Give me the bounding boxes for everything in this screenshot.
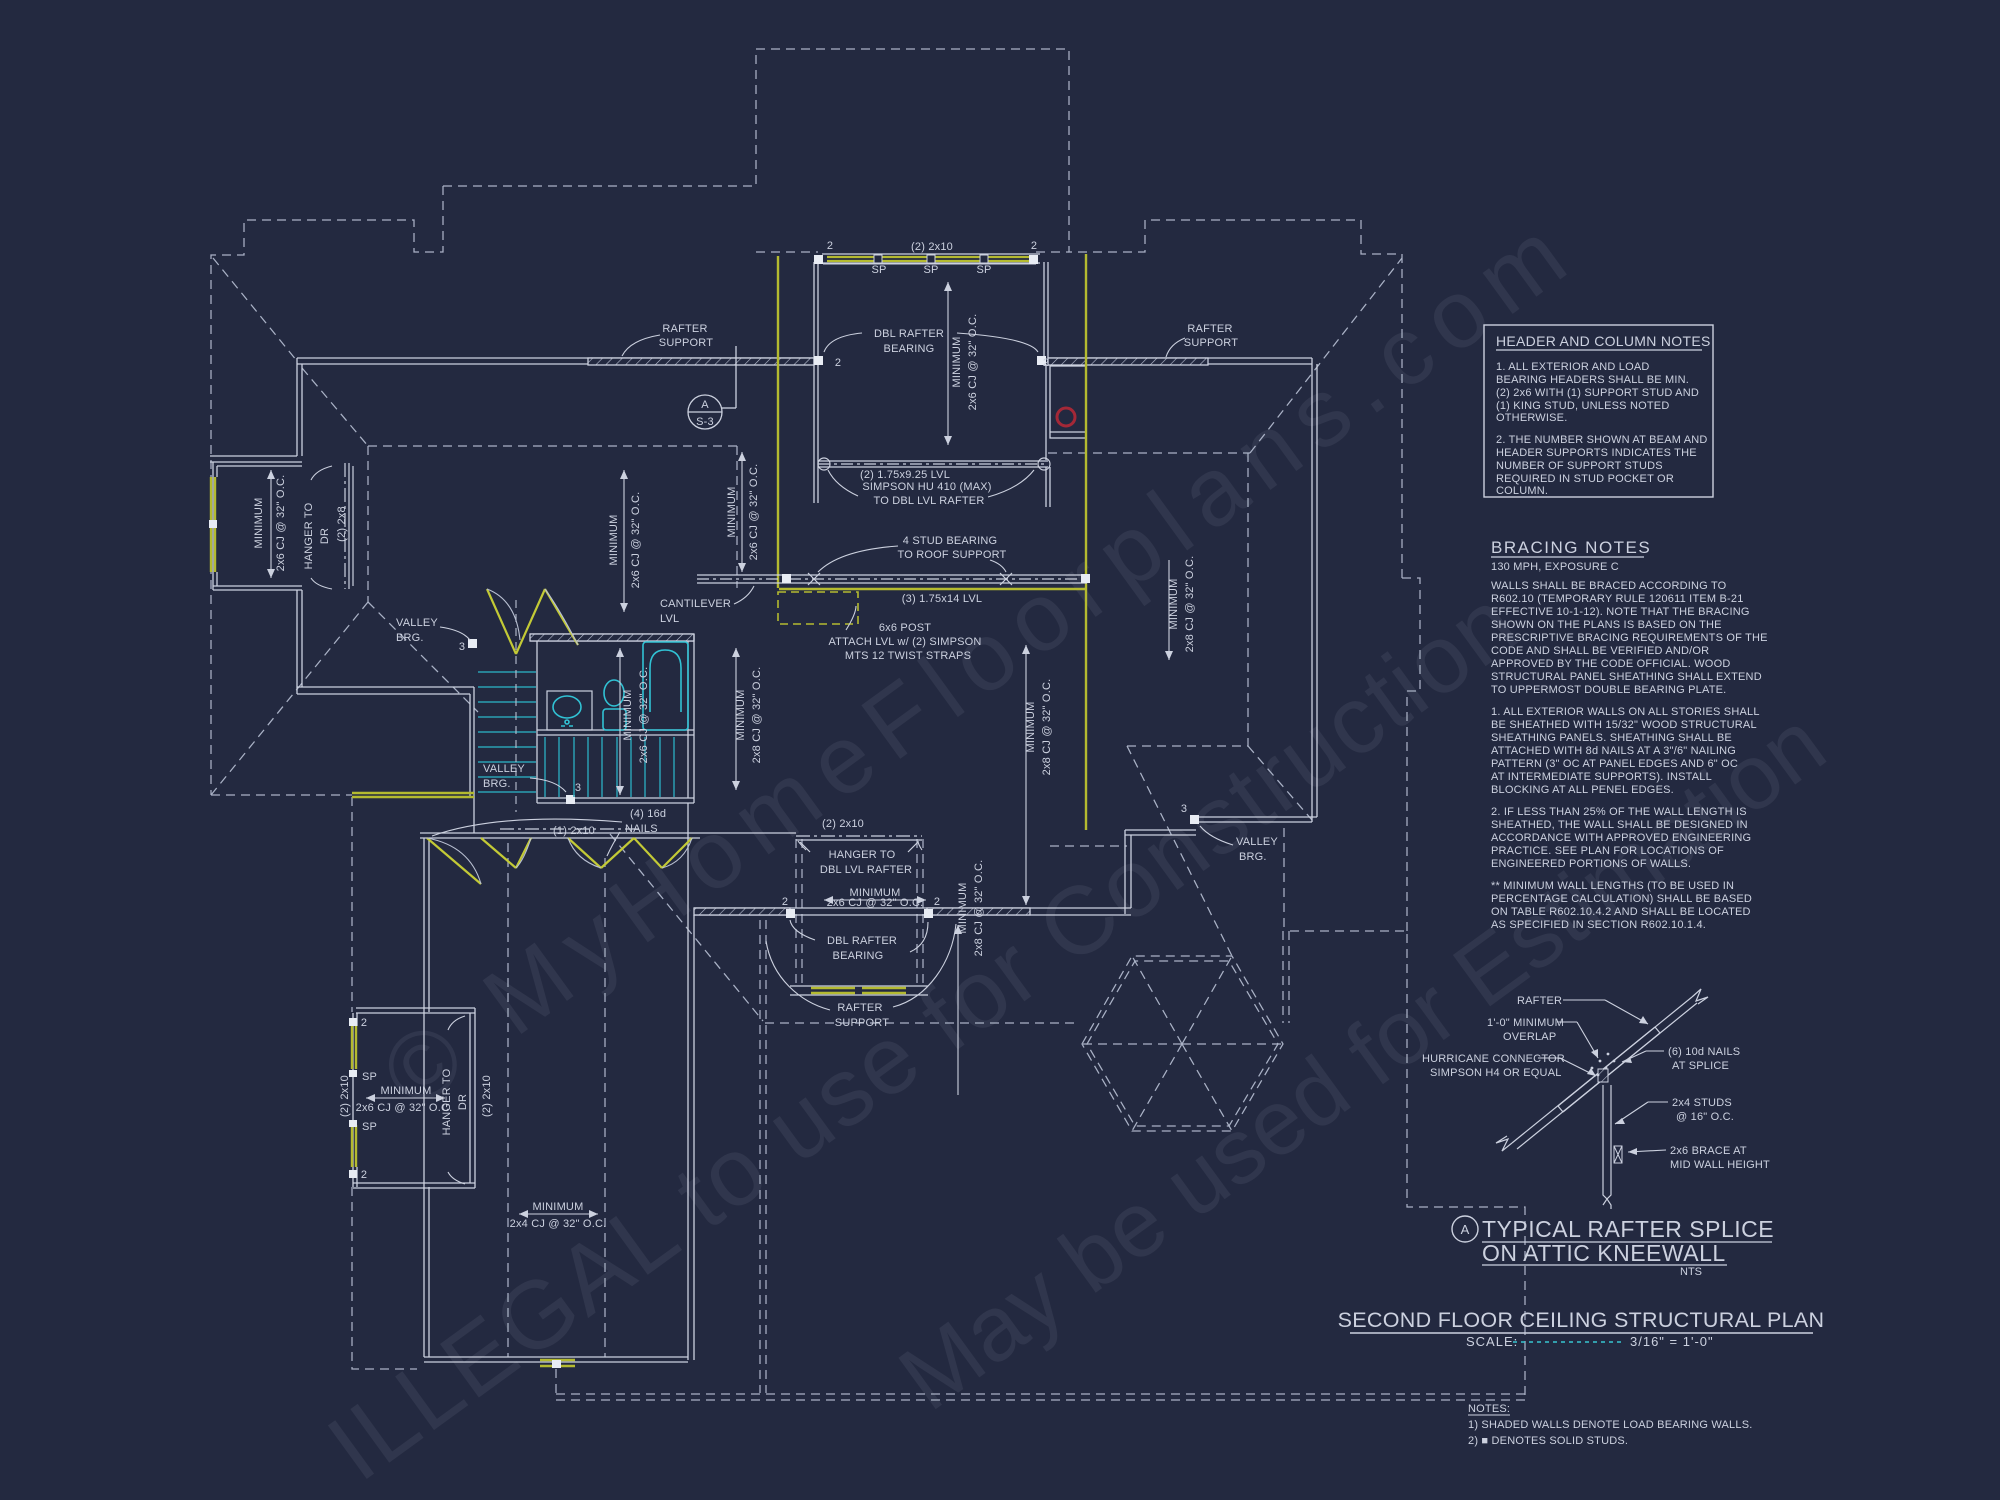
svg-text:1'-0" MINIMUM: 1'-0" MINIMUM xyxy=(1487,1017,1564,1029)
svg-text:2x4 CJ @ 32" O.C.: 2x4 CJ @ 32" O.C. xyxy=(510,1218,607,1230)
svg-text:SHOWN ON THE PLANS IS BASED ON: SHOWN ON THE PLANS IS BASED ON THE xyxy=(1491,619,1722,631)
svg-text:SP: SP xyxy=(976,264,991,276)
svg-text:MINIMUM: MINIMUM xyxy=(608,515,620,566)
svg-text:2: 2 xyxy=(782,896,788,908)
svg-text:2x6 CJ @ 32" O.C.: 2x6 CJ @ 32" O.C. xyxy=(356,1102,453,1114)
svg-text:6x6 POST: 6x6 POST xyxy=(879,622,931,634)
svg-text:MID WALL HEIGHT: MID WALL HEIGHT xyxy=(1670,1159,1770,1171)
svg-text:SIMPSON HU 410 (MAX): SIMPSON HU 410 (MAX) xyxy=(862,481,991,493)
svg-text:ATTACH LVL w/ (2) SIMPSON: ATTACH LVL w/ (2) SIMPSON xyxy=(828,636,981,648)
svg-text:NTS: NTS xyxy=(1680,1266,1702,1278)
svg-text:2) ■ DENOTES SOLID STUDS.: 2) ■ DENOTES SOLID STUDS. xyxy=(1468,1435,1628,1447)
svg-text:AT INTERMEDIATE SUPPORTS). INS: AT INTERMEDIATE SUPPORTS). INSTALL xyxy=(1491,771,1712,783)
svg-text:VALLEY: VALLEY xyxy=(483,763,525,775)
svg-text:TO ROOF SUPPORT: TO ROOF SUPPORT xyxy=(898,549,1007,561)
svg-text:SECOND FLOOR CEILING STRUCTURA: SECOND FLOOR CEILING STRUCTURAL PLAN xyxy=(1338,1308,1825,1332)
svg-text:HANGER TO: HANGER TO xyxy=(829,849,896,861)
svg-text:(2) 2x8: (2) 2x8 xyxy=(336,506,348,542)
svg-text:TYPICAL RAFTER SPLICE: TYPICAL RAFTER SPLICE xyxy=(1482,1216,1774,1242)
svg-text:AS SPECIFIED IN SECTION R602.1: AS SPECIFIED IN SECTION R602.10.1.4. xyxy=(1491,919,1706,931)
svg-text:(2) 2x10: (2) 2x10 xyxy=(822,818,864,830)
svg-text:2x6 CJ @ 32" O.C.: 2x6 CJ @ 32" O.C. xyxy=(748,464,760,561)
svg-text:SUPPORT: SUPPORT xyxy=(835,1017,889,1029)
svg-text:2x6 CJ @ 32" O.C.: 2x6 CJ @ 32" O.C. xyxy=(967,314,979,411)
svg-text:3: 3 xyxy=(459,641,465,653)
svg-text:(2) 2x6 WITH (1) SUPPORT STUD: (2) 2x6 WITH (1) SUPPORT STUD AND xyxy=(1496,387,1699,399)
svg-text:BRG.: BRG. xyxy=(396,632,424,644)
svg-text:SUPPORT: SUPPORT xyxy=(1184,337,1238,349)
svg-text:CANTILEVER: CANTILEVER xyxy=(660,598,731,610)
svg-text:130 MPH, EXPOSURE C: 130 MPH, EXPOSURE C xyxy=(1491,561,1619,573)
svg-text:3: 3 xyxy=(575,782,581,794)
svg-text:2. IF LESS THAN 25% OF THE WAL: 2. IF LESS THAN 25% OF THE WALL LENGTH I… xyxy=(1491,806,1747,818)
svg-text:1. ALL EXTERIOR AND LOAD: 1. ALL EXTERIOR AND LOAD xyxy=(1496,361,1650,373)
svg-text:ON ATTIC KNEEWALL: ON ATTIC KNEEWALL xyxy=(1482,1240,1726,1266)
svg-text:BRACING NOTES: BRACING NOTES xyxy=(1491,538,1651,557)
svg-text:1. ALL EXTERIOR WALLS ON ALL S: 1. ALL EXTERIOR WALLS ON ALL STORIES SHA… xyxy=(1491,706,1760,718)
svg-text:(3) 1.75x14 LVL: (3) 1.75x14 LVL xyxy=(902,593,982,605)
svg-text:MINIMUM: MINIMUM xyxy=(735,690,747,741)
svg-text:2: 2 xyxy=(934,896,940,908)
svg-text:3: 3 xyxy=(1181,803,1187,815)
svg-text:HURRICANE CONNECTOR: HURRICANE CONNECTOR xyxy=(1422,1053,1565,1065)
svg-text:(1) 2x10: (1) 2x10 xyxy=(553,825,595,837)
svg-text:BEARING: BEARING xyxy=(884,343,935,355)
svg-text:ACCORDANCE WITH APPROVED ENGIN: ACCORDANCE WITH APPROVED ENGINEERING xyxy=(1491,832,1751,844)
svg-text:APPROVED BY THE CODE OFFICIAL.: APPROVED BY THE CODE OFFICIAL. WOOD xyxy=(1491,658,1730,670)
svg-text:OVERLAP: OVERLAP xyxy=(1503,1031,1556,1043)
svg-text:NOTES:: NOTES: xyxy=(1468,1403,1510,1415)
svg-text:STRUCTURAL PANEL SHEATHING SHA: STRUCTURAL PANEL SHEATHING SHALL EXTEND xyxy=(1491,671,1762,683)
svg-text:2: 2 xyxy=(1031,240,1037,252)
svg-text:PATTERN (3" OC AT PANEL EDGES: PATTERN (3" OC AT PANEL EDGES AND 6" OC xyxy=(1491,758,1738,770)
svg-text:MTS 12 TWIST STRAPS: MTS 12 TWIST STRAPS xyxy=(845,650,971,662)
svg-text:BEARING HEADERS SHALL BE MIN.: BEARING HEADERS SHALL BE MIN. xyxy=(1496,374,1689,386)
svg-text:2x8 CJ @ 32" O.C.: 2x8 CJ @ 32" O.C. xyxy=(973,860,985,957)
svg-text:2x6 BRACE AT: 2x6 BRACE AT xyxy=(1670,1145,1747,1157)
svg-text:NAILS: NAILS xyxy=(625,823,658,835)
svg-text:WALLS SHALL BE BRACED ACCORDIN: WALLS SHALL BE BRACED ACCORDING TO xyxy=(1491,580,1727,592)
svg-text:(1) KING STUD, UNLESS NOTED: (1) KING STUD, UNLESS NOTED xyxy=(1496,400,1669,412)
svg-text:SCALE:: SCALE: xyxy=(1466,1334,1518,1349)
svg-text:S-3: S-3 xyxy=(696,416,714,428)
svg-text:SHEATHING PANELS. SHEATHING SH: SHEATHING PANELS. SHEATHING SHALL BE xyxy=(1491,732,1732,744)
svg-text:2: 2 xyxy=(835,357,841,369)
svg-text:MINIMUM: MINIMUM xyxy=(533,1201,584,1213)
svg-text:LVL: LVL xyxy=(660,613,679,625)
svg-text:2x6 CJ @ 32" O.C.: 2x6 CJ @ 32" O.C. xyxy=(827,897,924,909)
svg-text:SHEATHED, THE WALL SHALL BE DE: SHEATHED, THE WALL SHALL BE DESIGNED IN xyxy=(1491,819,1748,831)
svg-text:MINIMUM: MINIMUM xyxy=(1025,702,1037,753)
svg-text:HEADER SUPPORTS INDICATES THE: HEADER SUPPORTS INDICATES THE xyxy=(1496,447,1697,459)
svg-text:@ 16" O.C.: @ 16" O.C. xyxy=(1676,1111,1734,1123)
svg-text:MINIMUM: MINIMUM xyxy=(726,487,738,538)
svg-text:RAFTER: RAFTER xyxy=(662,323,707,335)
svg-text:R602.10 (TEMPORARY RULE 120611: R602.10 (TEMPORARY RULE 120611 ITEM B-21 xyxy=(1491,593,1744,605)
svg-text:BE SHEATHED WITH 15/32" WOOD S: BE SHEATHED WITH 15/32" WOOD STRUCTURAL xyxy=(1491,719,1757,731)
svg-text:MINIMUM: MINIMUM xyxy=(381,1085,432,1097)
svg-text:2x8 CJ @ 32" O.C.: 2x8 CJ @ 32" O.C. xyxy=(751,667,763,764)
svg-text:DBL RAFTER: DBL RAFTER xyxy=(827,935,897,947)
svg-text:(2) 2x10: (2) 2x10 xyxy=(339,1075,351,1117)
svg-text:2x6 CJ @ 32" O.C.: 2x6 CJ @ 32" O.C. xyxy=(275,475,287,572)
svg-text:DR: DR xyxy=(457,1094,469,1110)
svg-text:A: A xyxy=(701,399,709,411)
svg-text:REQUIRED IN STUD POCKET OR: REQUIRED IN STUD POCKET OR xyxy=(1496,473,1674,485)
svg-text:ATTACHED WITH 8d NAILS AT A 3": ATTACHED WITH 8d NAILS AT A 3"/6" NAILIN… xyxy=(1491,745,1736,757)
svg-text:2x8 CJ @ 32" O.C.: 2x8 CJ @ 32" O.C. xyxy=(1041,679,1053,776)
svg-text:VALLEY: VALLEY xyxy=(1236,836,1278,848)
svg-text:TO UPPERMOST DOUBLE BEARING PL: TO UPPERMOST DOUBLE BEARING PLATE. xyxy=(1491,684,1726,696)
svg-text:ENGINEERED PORTIONS OF WALLS.: ENGINEERED PORTIONS OF WALLS. xyxy=(1491,858,1691,870)
svg-text:RAFTER: RAFTER xyxy=(1187,323,1232,335)
svg-text:2: 2 xyxy=(361,1169,367,1181)
svg-text:HANGER TO: HANGER TO xyxy=(303,502,315,569)
svg-text:EFFECTIVE 10-1-12). NOTE THAT: EFFECTIVE 10-1-12). NOTE THAT THE BRACIN… xyxy=(1491,606,1750,618)
svg-text:3/16" = 1'-0": 3/16" = 1'-0" xyxy=(1630,1334,1714,1349)
svg-text:DBL LVL RAFTER: DBL LVL RAFTER xyxy=(820,864,912,876)
svg-text:SP: SP xyxy=(362,1121,377,1133)
svg-text:BLOCKING AT ALL PENEL EDGES.: BLOCKING AT ALL PENEL EDGES. xyxy=(1491,784,1674,796)
svg-text:(2) 1.75x9.25 LVL: (2) 1.75x9.25 LVL xyxy=(860,469,950,481)
svg-text:2x8 CJ @ 32" O.C.: 2x8 CJ @ 32" O.C. xyxy=(1184,556,1196,653)
svg-text:AT SPLICE: AT SPLICE xyxy=(1672,1060,1729,1072)
svg-text:CODE AND SHALL BE VERIFIED AND: CODE AND SHALL BE VERIFIED AND/OR xyxy=(1491,645,1709,657)
svg-text:RAFTER: RAFTER xyxy=(837,1002,882,1014)
svg-text:4 STUD BEARING: 4 STUD BEARING xyxy=(903,535,998,547)
svg-text:VALLEY: VALLEY xyxy=(396,617,438,629)
svg-text:2x6 CJ @ 32" O.C.: 2x6 CJ @ 32" O.C. xyxy=(638,667,650,764)
svg-text:SIMPSON H4 OR EQUAL: SIMPSON H4 OR EQUAL xyxy=(1430,1067,1562,1079)
svg-text:OTHERWISE.: OTHERWISE. xyxy=(1496,412,1567,424)
svg-text:ON TABLE R602.10.4.2 AND SHALL: ON TABLE R602.10.4.2 AND SHALL BE LOCATE… xyxy=(1491,906,1751,918)
svg-text:PRACTICE. SEE PLAN FOR LOCATIO: PRACTICE. SEE PLAN FOR LOCATIONS OF xyxy=(1491,845,1724,857)
svg-text:NUMBER OF SUPPORT STUDS: NUMBER OF SUPPORT STUDS xyxy=(1496,460,1663,472)
svg-text:SP: SP xyxy=(923,264,938,276)
svg-text:2: 2 xyxy=(827,240,833,252)
svg-text:MINIMUM: MINIMUM xyxy=(957,883,969,934)
svg-text:BRG.: BRG. xyxy=(1239,851,1267,863)
svg-text:1) SHADED WALLS DENOTE LOAD BE: 1) SHADED WALLS DENOTE LOAD BEARING WALL… xyxy=(1468,1419,1753,1431)
svg-text:TO DBL LVL RAFTER: TO DBL LVL RAFTER xyxy=(874,495,985,507)
svg-text:HANGER TO: HANGER TO xyxy=(441,1068,453,1135)
svg-text:(4) 16d: (4) 16d xyxy=(630,808,666,820)
svg-text:(2) 2x10: (2) 2x10 xyxy=(911,241,953,253)
svg-text:RAFTER: RAFTER xyxy=(1517,995,1562,1007)
svg-text:MINIMUM: MINIMUM xyxy=(253,498,265,549)
svg-text:PRESCRIPTIVE BRACING REQUIREME: PRESCRIPTIVE BRACING REQUIREMENTS OF THE xyxy=(1491,632,1768,644)
svg-text:HEADER AND COLUMN NOTES: HEADER AND COLUMN NOTES xyxy=(1496,333,1711,349)
svg-text:COLUMN.: COLUMN. xyxy=(1496,485,1548,497)
svg-text:(2) 2x10: (2) 2x10 xyxy=(481,1075,493,1117)
svg-text:(6) 10d NAILS: (6) 10d NAILS xyxy=(1668,1046,1740,1058)
svg-text:SP: SP xyxy=(362,1071,377,1083)
svg-text:DR: DR xyxy=(319,528,331,544)
svg-text:DBL RAFTER: DBL RAFTER xyxy=(874,328,944,340)
svg-text:2: 2 xyxy=(361,1017,367,1029)
svg-text:2x6 CJ @ 32" O.C.: 2x6 CJ @ 32" O.C. xyxy=(630,492,642,589)
svg-text:MINIMUM: MINIMUM xyxy=(951,337,963,388)
svg-text:2x4 STUDS: 2x4 STUDS xyxy=(1672,1097,1732,1109)
svg-text:PERCENTAGE CALCULATION) SHALL: PERCENTAGE CALCULATION) SHALL BE BASED xyxy=(1491,893,1752,905)
svg-text:MINIMUM: MINIMUM xyxy=(1168,579,1180,630)
svg-text:A: A xyxy=(1461,1222,1470,1237)
svg-text:2: 2 xyxy=(1043,357,1049,369)
svg-text:** MINIMUM WALL LENGTHS (TO BE: ** MINIMUM WALL LENGTHS (TO BE USED IN xyxy=(1491,880,1734,892)
svg-text:SP: SP xyxy=(871,264,886,276)
svg-text:BEARING: BEARING xyxy=(833,950,884,962)
svg-text:2. THE NUMBER SHOWN AT BEAM AN: 2. THE NUMBER SHOWN AT BEAM AND xyxy=(1496,434,1708,446)
svg-text:BRG.: BRG. xyxy=(483,778,511,790)
svg-text:SUPPORT: SUPPORT xyxy=(659,337,713,349)
svg-text:MINIMUM: MINIMUM xyxy=(622,690,634,741)
